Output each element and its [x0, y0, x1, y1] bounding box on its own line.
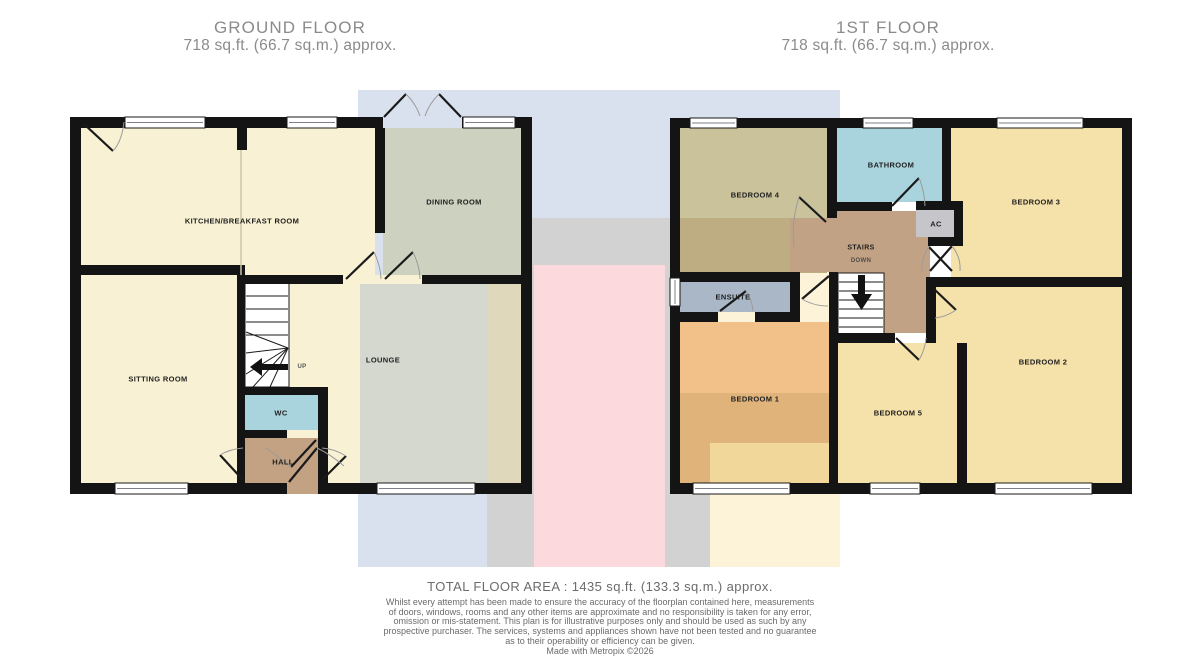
first-floor-title-text: 1ST FLOOR: [782, 18, 995, 37]
ground-floor-plan: [70, 94, 532, 494]
first-room-fills: [680, 128, 1122, 483]
hall-label: HALL: [272, 458, 293, 467]
ground-floor-title: GROUND FLOOR 718 sq.ft. (66.7 sq.m.) app…: [184, 18, 397, 55]
ground-room-fills: [80, 128, 521, 494]
dining-label: DINING ROOM: [426, 198, 482, 207]
ac-label: AC: [930, 220, 942, 229]
up-label: UP: [297, 364, 306, 370]
sitting-label: SITTING ROOM: [128, 375, 187, 384]
stairs-down-label: DOWN: [851, 258, 871, 264]
ground-floor-title-text: GROUND FLOOR: [184, 18, 397, 37]
first-floor-plan: [670, 118, 1132, 494]
total-floor-area: TOTAL FLOOR AREA : 1435 sq.ft. (133.3 sq…: [170, 579, 1030, 594]
bedroom5-label: BEDROOM 5: [874, 409, 923, 418]
first-floor-area-text: 718 sq.ft. (66.7 sq.m.) approx.: [782, 37, 995, 55]
ground-floor-area-text: 718 sq.ft. (66.7 sq.m.) approx.: [184, 37, 397, 55]
stairs-label: STAIRS: [847, 245, 874, 252]
bedroom1-label: BEDROOM 1: [731, 395, 780, 404]
floorplan-page: GROUND FLOOR 718 sq.ft. (66.7 sq.m.) app…: [0, 0, 1200, 659]
ensuite-label: ENSUITE: [716, 293, 751, 302]
floorplan-drawing: [0, 0, 1200, 659]
metropix-credit: Made with Metropix ©2026: [170, 647, 1030, 657]
bedroom2-label: BEDROOM 2: [1019, 358, 1068, 367]
disclaimer-text: Whilst every attempt has been made to en…: [170, 598, 1030, 647]
first-floor-title: 1ST FLOOR 718 sq.ft. (66.7 sq.m.) approx…: [782, 18, 995, 55]
wc-label: WC: [274, 409, 287, 418]
bedroom4-label: BEDROOM 4: [731, 191, 780, 200]
footer: TOTAL FLOOR AREA : 1435 sq.ft. (133.3 sq…: [170, 579, 1030, 656]
lounge-label: LOUNGE: [366, 356, 400, 365]
bathroom-label: BATHROOM: [868, 161, 914, 170]
bedroom3-label: BEDROOM 3: [1012, 198, 1061, 207]
kitchen-label: KITCHEN/BREAKFAST ROOM: [185, 217, 299, 226]
